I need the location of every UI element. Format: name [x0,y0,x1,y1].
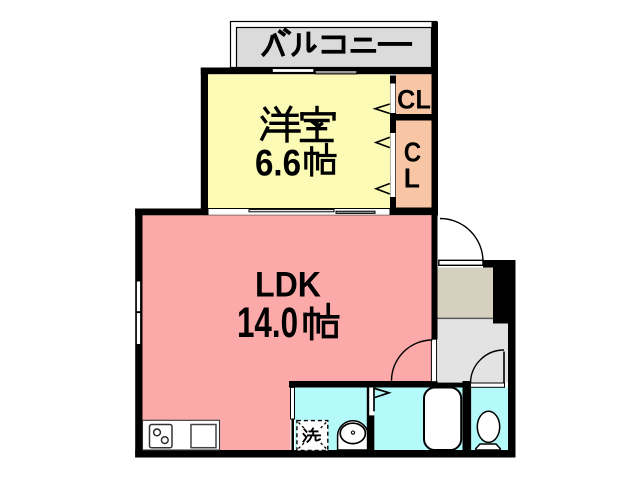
svg-text:CL: CL [397,85,431,115]
svg-text:6.6: 6.6 [255,143,301,184]
svg-text:L: L [404,163,420,194]
svg-text:14.0: 14.0 [237,299,298,347]
